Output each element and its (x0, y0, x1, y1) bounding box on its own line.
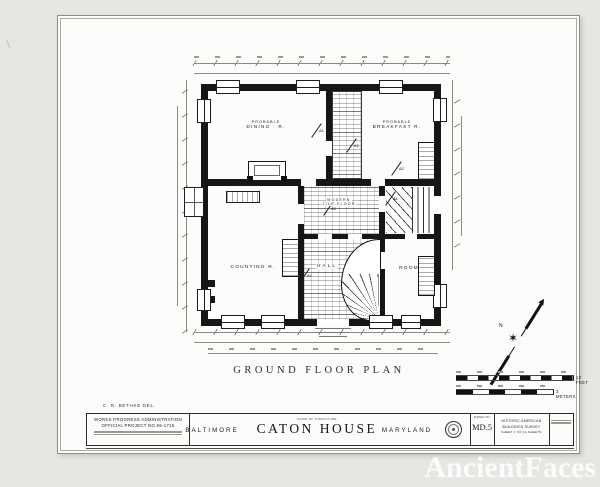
section-marker-label: A1 (393, 196, 398, 201)
structure-name: CATON HOUSE (247, 421, 387, 437)
dimension-ticks-right (454, 84, 460, 248)
habs-box: HISTORIC AMERICAN BUILDINGS SURVEY SHEET… (494, 414, 549, 445)
stray-pencil-mark (7, 40, 11, 49)
maryland-seal-icon (445, 421, 462, 438)
drawing-sheet: A1 A2 A2 A2 A1 A2 PROBABLE DINING · R. P… (57, 15, 580, 454)
section-marker: A1 (383, 192, 399, 207)
title-block: WORKS PROGRESS ADMINISTRATION OFFICIAL P… (86, 413, 574, 446)
room-label-room: ROOM (391, 266, 427, 272)
fireplace-dining-hearth (254, 165, 280, 176)
passage-label-line1: MODERN (326, 198, 351, 202)
room-label-room-text: ROOM (399, 266, 419, 271)
ancientfaces-watermark: AncientFaces (424, 451, 596, 485)
wall-hall-divider-2 (332, 234, 348, 239)
window-east-2 (433, 284, 447, 308)
wall-dining-divider-upper (326, 91, 332, 141)
dimension-line-top-1 (194, 63, 450, 64)
entrance-door-south (317, 319, 349, 326)
fireplace-room (418, 256, 435, 296)
back-stair-treads (412, 187, 434, 233)
wall-dining-divider-lower (326, 156, 332, 179)
title-block-divider (470, 414, 471, 445)
north-label: N (499, 323, 503, 329)
dimension-line-bottom-3 (208, 353, 438, 354)
room-label-counting-text: COUNTING R. (231, 265, 276, 270)
bay-window-west (184, 187, 204, 217)
room-label-hall: HALL (305, 264, 349, 270)
habs-sheet-count: SHEET 1 OF 14 SHEETS (494, 430, 549, 435)
room-label-breakfast-name: BREAKFAST R. (373, 125, 422, 130)
photo-canvas: A1 A2 A2 A2 A1 A2 PROBABLE DINING · R. P… (0, 0, 600, 487)
passage-brick-floor (304, 186, 379, 234)
room-label-hall-text: HALL (316, 264, 338, 269)
room-label-dining: PROBABLE DINING · R. (231, 120, 301, 131)
wall-mid-segment-2 (316, 179, 371, 186)
passage-label-line2: TILE FLOOR (322, 202, 357, 206)
north-arrow-head-shaft (524, 303, 542, 329)
meters-scale-label: 3 METERS (556, 389, 579, 399)
fireplace-dining (248, 161, 286, 181)
dimension-text-bottom (208, 348, 438, 350)
room-label-passage: MODERN TILE FLOOR (309, 198, 369, 207)
window-east-1 (433, 98, 447, 122)
window-south-4 (401, 315, 421, 329)
section-marker: A2 (389, 162, 405, 177)
wall-counting-divider-upper (298, 186, 304, 204)
section-marker: A2 (344, 139, 360, 154)
dimension-line-bottom-2 (194, 342, 450, 343)
window-west-2 (197, 289, 211, 311)
window-north-3 (379, 80, 403, 94)
room-label-dining-name: DINING · R. (246, 125, 285, 130)
cupboard-counting (226, 191, 260, 203)
dimension-line-right-2 (461, 116, 462, 236)
title-block-end-box (549, 414, 573, 445)
window-north-2 (296, 80, 320, 94)
survey-number-header: SURVEY NO. (470, 416, 494, 419)
floor-plan: A1 A2 A2 A2 A1 A2 PROBABLE DINING · R. P… (201, 84, 441, 326)
wall-backstairs-1 (385, 234, 405, 239)
section-marker-label: A1 (319, 128, 324, 133)
wall-stub-1 (208, 280, 215, 287)
structure-name-header: NAME OF STRUCTURE (272, 417, 362, 421)
fireplace-breakfast (418, 142, 435, 180)
door-east (434, 196, 441, 214)
window-south-1 (221, 315, 245, 329)
section-marker-label: A2 (354, 143, 359, 148)
feet-scale-bar (456, 376, 574, 380)
end-box-fineprint-1 (551, 420, 572, 421)
dimension-text-top (194, 56, 450, 58)
meters-scale-bar (456, 390, 554, 394)
dimension-line-left-2 (177, 106, 178, 306)
wall-hall-divider-1 (304, 234, 318, 239)
wall-mid-segment-3 (385, 179, 441, 186)
window-south-2 (261, 315, 285, 329)
north-arrow-tail (489, 355, 510, 385)
section-marker-label: A2 (399, 166, 404, 171)
room-label-breakfast: PROBABLE BREAKFAST R. (361, 120, 433, 131)
dimension-line-top-2 (194, 73, 450, 74)
stair-treads-fan (342, 274, 380, 320)
survey-number-box: SURVEY NO. MD.5 (470, 414, 494, 445)
window-south-3 (369, 315, 393, 329)
dimension-line-right-1 (452, 80, 453, 270)
window-west-1 (197, 99, 211, 123)
survey-number: MD.5 (470, 422, 494, 432)
wall-backstairs-2 (417, 234, 441, 239)
plan-title: GROUND FLOOR PLAN (219, 365, 419, 376)
chimney-brick-mass (332, 91, 362, 179)
section-marker-label: A2 (307, 273, 312, 278)
feet-scale-label: 10 FEET (576, 375, 588, 385)
habs-line1: HISTORIC AMERICAN (494, 419, 549, 425)
entrance-step-1 (315, 328, 351, 329)
wpa-fineprint-2 (94, 434, 182, 435)
delineator-credit: C. R. BETHKE DEL. (103, 403, 156, 408)
section-marker: A2 (297, 269, 313, 284)
window-north-1 (216, 80, 240, 94)
compass-star-icon: ✶ (508, 331, 518, 345)
entrance-step-2 (317, 332, 349, 333)
room-label-counting: COUNTING R. (213, 265, 293, 271)
end-box-fineprint-2 (551, 422, 572, 423)
feet-scale-numbers (456, 371, 572, 373)
section-marker: A1 (309, 124, 325, 139)
entrance-step-3 (319, 336, 347, 337)
meters-scale-numbers (456, 385, 552, 387)
state-label: MARYLAND (372, 427, 442, 434)
